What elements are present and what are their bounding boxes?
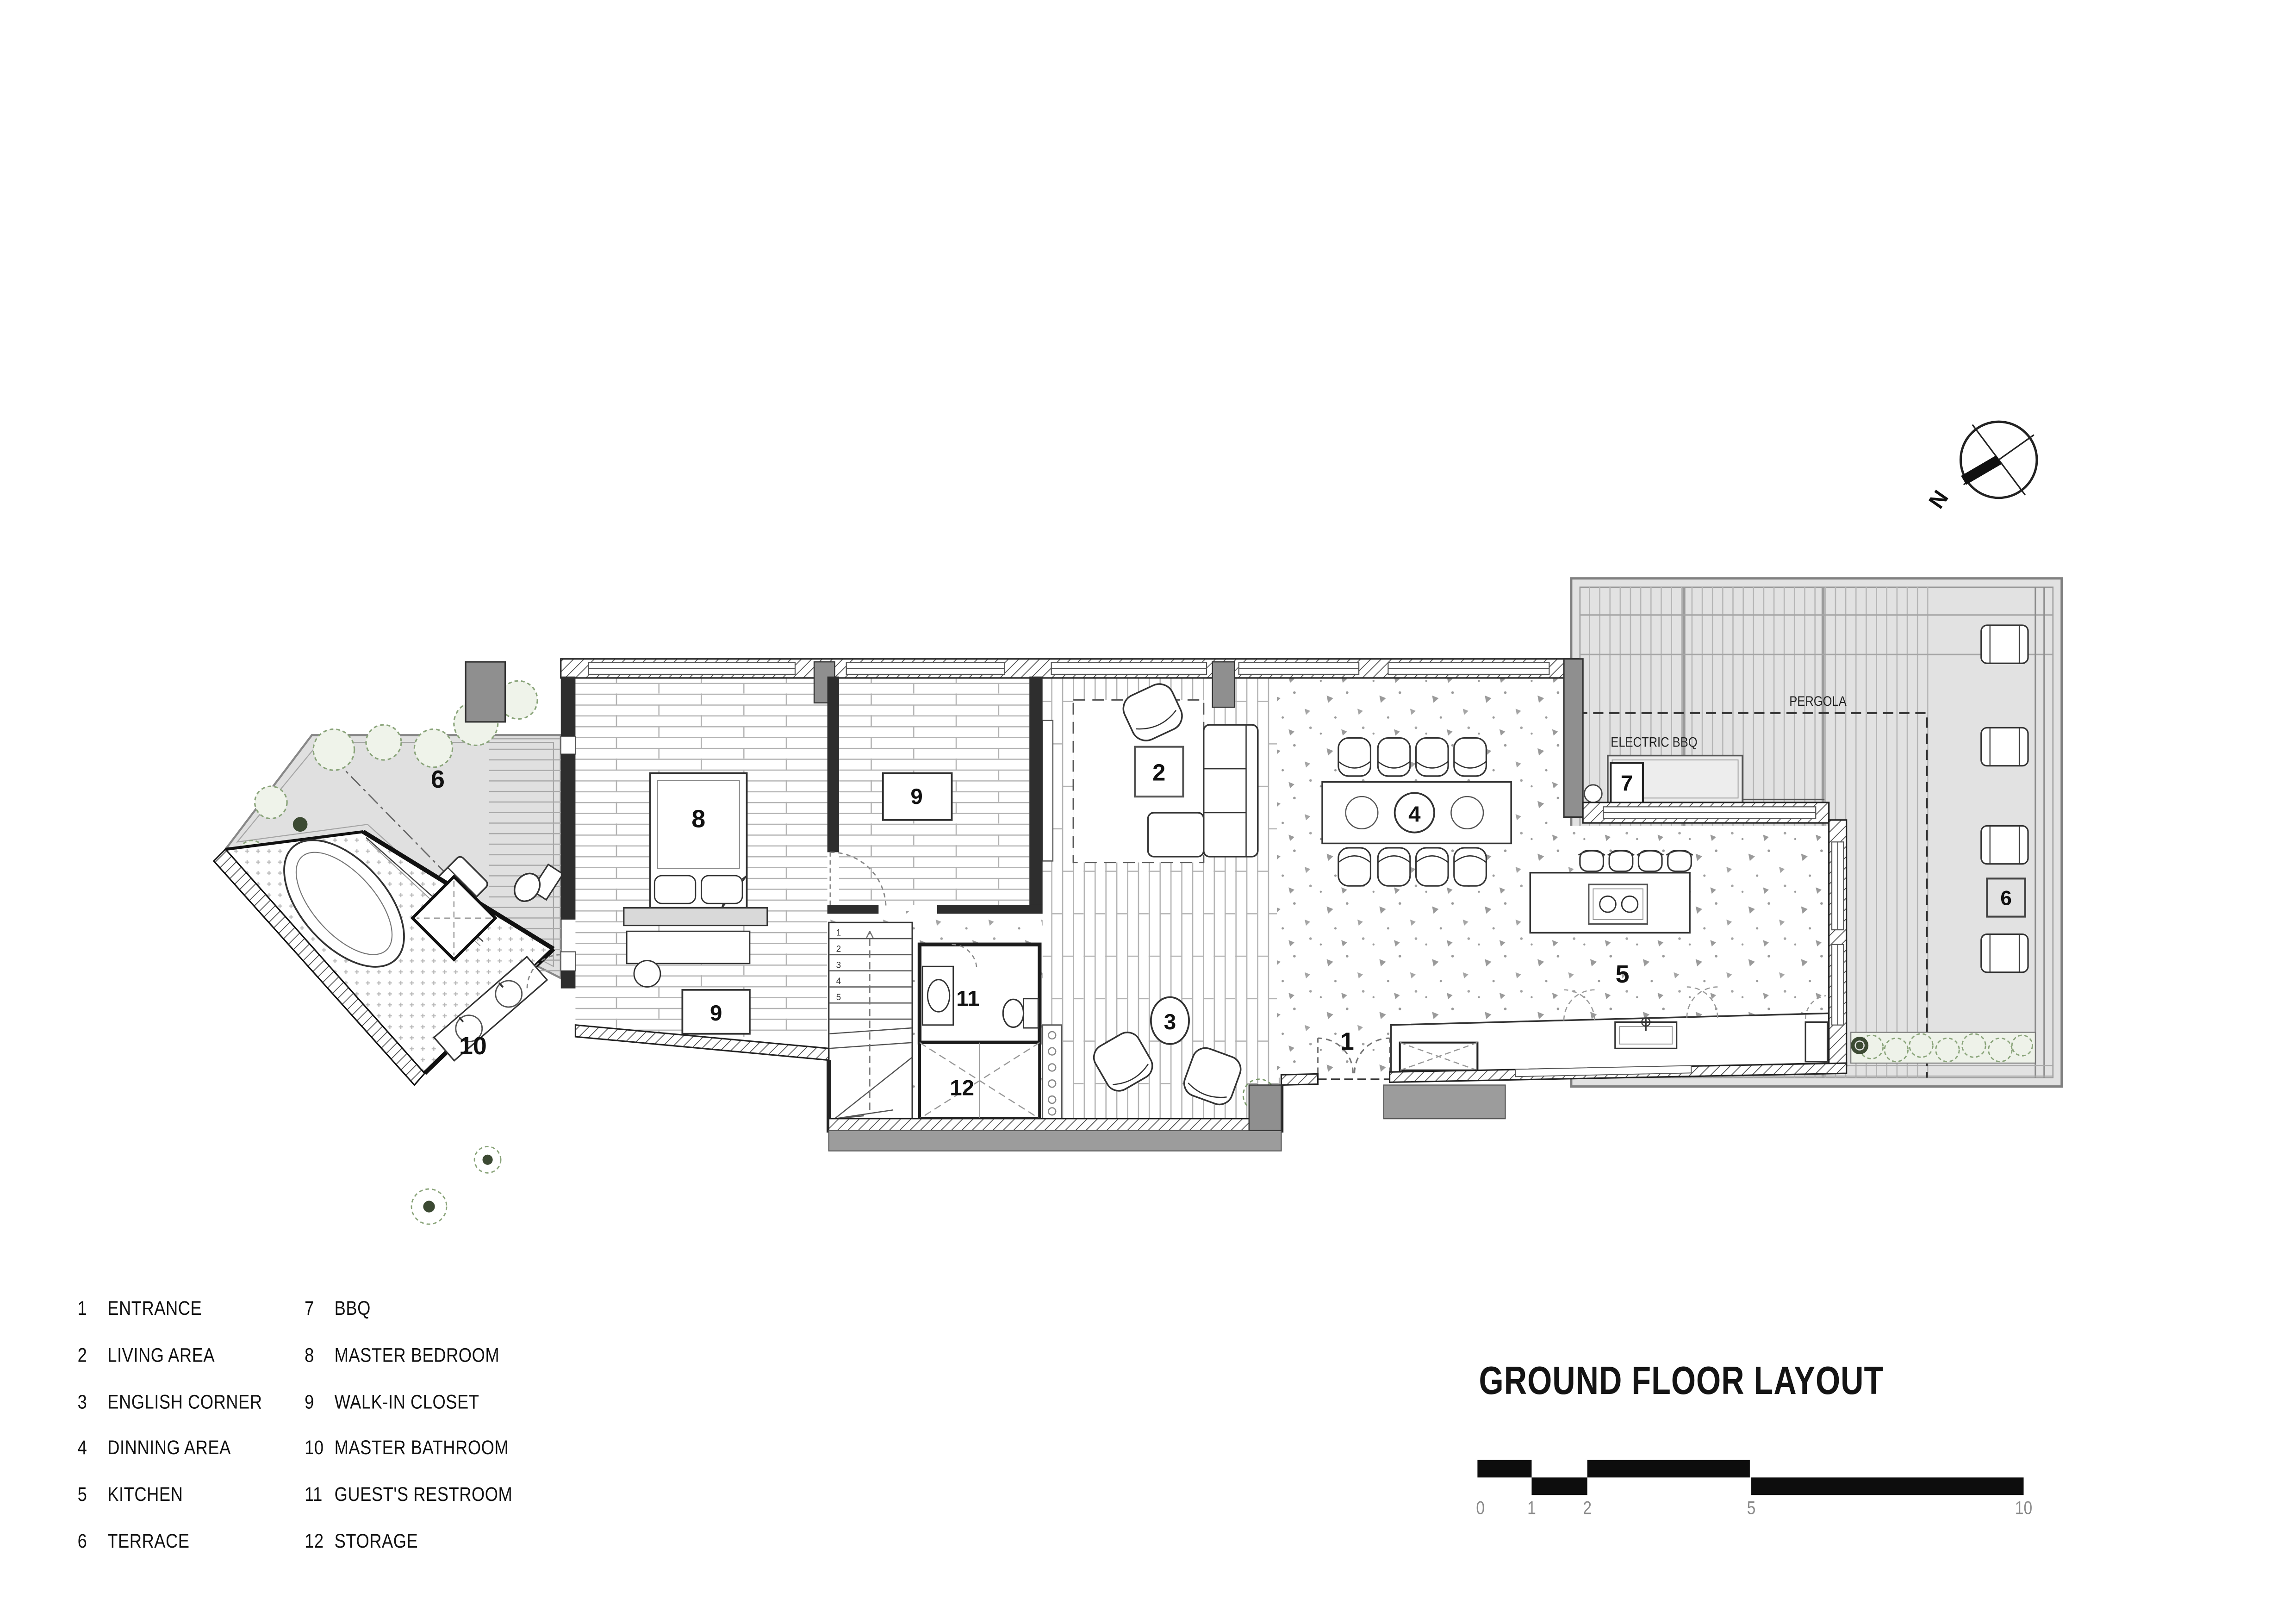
column xyxy=(1564,659,1583,817)
room-marker-restroom: 11 xyxy=(956,987,979,1011)
scale-bar: 0 1 2 5 10 xyxy=(1477,1460,2023,1533)
pillow xyxy=(702,876,743,903)
legend-label: TERRACE xyxy=(107,1530,189,1552)
column xyxy=(1213,662,1234,707)
legend-number: 7 xyxy=(305,1298,335,1319)
svg-text:6: 6 xyxy=(2000,887,2012,909)
room-marker-terrace-left: 6 xyxy=(431,765,445,793)
legend-number: 9 xyxy=(305,1391,335,1412)
tall-cabinet xyxy=(1805,1022,1827,1061)
legend-label: ENGLISH CORNER xyxy=(107,1391,262,1412)
partition-closet-corridor xyxy=(937,905,1043,914)
scale-tick: 5 xyxy=(1746,1498,1755,1518)
legend-number: 3 xyxy=(78,1391,108,1412)
north-arrow: N xyxy=(1924,422,2037,513)
legend-label: DINNING AREA xyxy=(107,1437,231,1459)
cooktop xyxy=(1589,884,1648,924)
room-marker-bedroom: 8 xyxy=(691,805,705,833)
wardrobe-marker-9-bottom: 9 xyxy=(682,990,750,1034)
scale-segment xyxy=(1750,1477,2023,1495)
column xyxy=(466,662,505,722)
north-letter: N xyxy=(1924,486,1953,513)
pergola-label: PERGOLA xyxy=(1789,693,1847,709)
entrance-step xyxy=(1384,1085,1506,1119)
svg-text:4: 4 xyxy=(836,977,841,986)
chaise xyxy=(1148,813,1203,857)
legend-item: 12STORAGE xyxy=(305,1518,512,1564)
legend-label: GUEST'S RESTROOM xyxy=(335,1483,513,1505)
staircase: 1 2 3 4 5 xyxy=(829,922,912,1119)
room-marker-bbq: 7 xyxy=(1611,763,1643,804)
legend-item: 6TERRACE xyxy=(78,1518,262,1564)
room-marker-storage: 12 xyxy=(950,1076,974,1101)
room-marker-kitchen: 5 xyxy=(1616,960,1630,988)
wine-rack xyxy=(1043,1025,1062,1119)
svg-text:1: 1 xyxy=(836,928,841,938)
legend-number: 11 xyxy=(305,1483,335,1505)
room-marker-terrace-right: 6 xyxy=(1987,878,2025,916)
guest-restroom: 11 xyxy=(920,945,1039,1043)
partition-living xyxy=(1029,677,1042,905)
svg-text:9: 9 xyxy=(710,1001,722,1026)
scale-tick: 0 xyxy=(1476,1498,1485,1518)
plate xyxy=(1346,796,1378,829)
kitchen-sink xyxy=(1615,1018,1677,1049)
headboard xyxy=(624,908,767,926)
page-title: GROUND FLOOR LAYOUT xyxy=(1479,1359,1884,1404)
room-marker-dining: 4 xyxy=(1395,793,1434,832)
room-marker-closet-top: 9 xyxy=(910,784,922,809)
legend-column-1: 1ENTRANCE 2LIVING AREA 3ENGLISH CORNER 4… xyxy=(78,1286,262,1564)
legend-label: ENTRANCE xyxy=(107,1298,202,1319)
tree-icon xyxy=(293,817,308,832)
dining-area: 4 xyxy=(1322,738,1511,886)
room-marker-entrance: 1 xyxy=(1340,1028,1354,1056)
storage: 12 xyxy=(920,1043,1039,1119)
legend-label: LIVING AREA xyxy=(107,1344,215,1366)
pantry-unit xyxy=(1400,1043,1478,1070)
svg-text:3: 3 xyxy=(836,960,841,970)
legend-item: 2LIVING AREA xyxy=(78,1332,262,1378)
bed xyxy=(650,773,747,908)
legend-label: WALK-IN CLOSET xyxy=(335,1391,479,1412)
wc-toilet xyxy=(1003,999,1023,1027)
legend-item: 11GUEST'S RESTROOM xyxy=(305,1471,512,1518)
electric-bbq-label: ELECTRIC BBQ xyxy=(1611,734,1697,750)
legend-item: 4DINNING AREA xyxy=(78,1425,262,1471)
scale-tick: 10 xyxy=(2015,1498,2032,1518)
tv-console xyxy=(1043,721,1053,861)
room-marker-english-corner: 3 xyxy=(1151,997,1189,1044)
legend-number: 8 xyxy=(305,1344,335,1366)
svg-text:5: 5 xyxy=(836,993,841,1002)
legend-column-2: 7BBQ 8MASTER BEDROOM 9WALK-IN CLOSET 10M… xyxy=(305,1286,512,1564)
legend-label: MASTER BEDROOM xyxy=(335,1344,500,1366)
legend-number: 1 xyxy=(78,1298,108,1319)
south-porch xyxy=(829,1131,1282,1151)
scale-segment xyxy=(1532,1477,1587,1495)
legend-label: MASTER BATHROOM xyxy=(335,1437,509,1459)
pillow xyxy=(654,876,696,903)
legend-number: 10 xyxy=(305,1437,335,1459)
legend-label: BBQ xyxy=(335,1298,371,1319)
legend-label: KITCHEN xyxy=(107,1483,183,1505)
legend-number: 5 xyxy=(78,1483,108,1505)
scale-tick: 2 xyxy=(1582,1498,1591,1518)
porch-column xyxy=(1249,1085,1282,1130)
wc-toilet-tank xyxy=(1024,999,1039,1028)
svg-text:3: 3 xyxy=(1164,1010,1176,1034)
svg-text:4: 4 xyxy=(1408,802,1421,827)
legend-item: 3ENGLISH CORNER xyxy=(78,1378,262,1425)
room-marker-living: 2 xyxy=(1135,747,1183,797)
svg-text:2: 2 xyxy=(1152,759,1165,785)
legend-item: 7BBQ xyxy=(305,1286,512,1332)
scale-segment xyxy=(1477,1460,1532,1477)
floor-plan-sheet: PERGOLA 6 ELECTRIC BBQ xyxy=(0,0,2296,1624)
scale-segment xyxy=(1587,1460,1750,1477)
hedge-planter xyxy=(1851,1033,2035,1063)
legend-label: STORAGE xyxy=(335,1530,418,1552)
legend-number: 2 xyxy=(78,1344,108,1366)
scale-tick: 1 xyxy=(1528,1498,1537,1518)
legend-item: 9WALK-IN CLOSET xyxy=(305,1378,512,1425)
legend-item: 1ENTRANCE xyxy=(78,1286,262,1332)
legend-item: 8MASTER BEDROOM xyxy=(305,1332,512,1378)
svg-text:2: 2 xyxy=(836,945,841,954)
legend-item: 10MASTER BATHROOM xyxy=(305,1425,512,1471)
desk-chair xyxy=(634,961,660,987)
partition-bedroom-closet xyxy=(828,677,839,852)
bbq-sink xyxy=(1584,785,1602,803)
legend-number: 6 xyxy=(78,1530,108,1552)
garden-plants xyxy=(411,1146,501,1224)
svg-text:7: 7 xyxy=(1621,772,1633,796)
top-windows xyxy=(589,663,1549,674)
desk xyxy=(627,931,750,964)
legend-number: 4 xyxy=(78,1437,108,1459)
room-marker-bathroom: 10 xyxy=(459,1032,487,1060)
legend-item: 5KITCHEN xyxy=(78,1471,262,1518)
tree-icon xyxy=(1851,1037,1868,1054)
walkin-closet: 9 xyxy=(883,773,952,820)
west-wall xyxy=(561,677,576,989)
legend-number: 12 xyxy=(305,1530,335,1552)
plate xyxy=(1451,796,1483,829)
